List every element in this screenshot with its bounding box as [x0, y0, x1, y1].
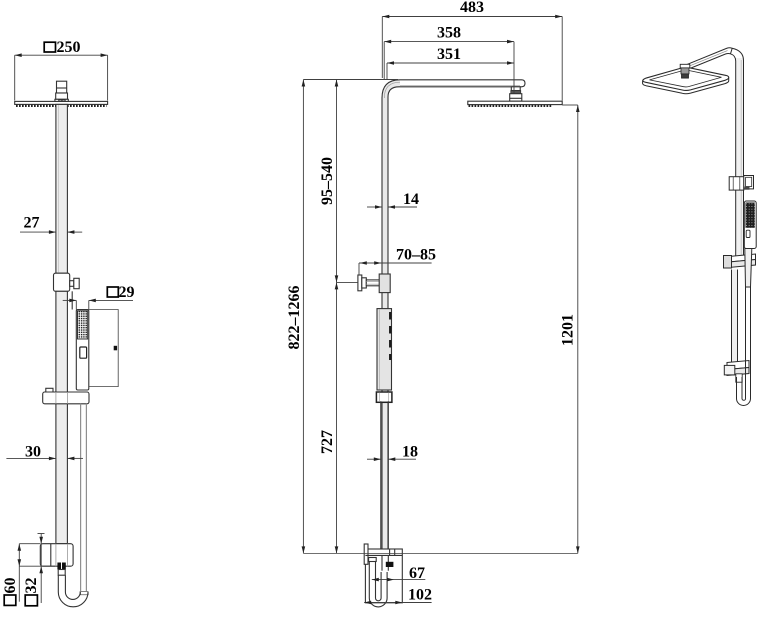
svg-text:102: 102	[408, 587, 432, 604]
svg-text:27: 27	[24, 215, 40, 232]
svg-text:250: 250	[57, 39, 81, 56]
svg-text:60: 60	[2, 578, 19, 594]
svg-text:351: 351	[437, 46, 461, 63]
svg-text:727: 727	[319, 430, 336, 454]
svg-text:18: 18	[402, 444, 418, 461]
svg-text:14: 14	[403, 191, 419, 208]
svg-text:358: 358	[437, 25, 461, 42]
svg-text:1201: 1201	[559, 314, 576, 346]
svg-text:483: 483	[460, 0, 484, 16]
svg-text:70–85: 70–85	[396, 247, 436, 264]
svg-text:95–540: 95–540	[319, 157, 336, 205]
svg-text:29: 29	[119, 284, 135, 301]
svg-text:32: 32	[23, 578, 40, 594]
svg-text:822–1266: 822–1266	[286, 286, 303, 350]
